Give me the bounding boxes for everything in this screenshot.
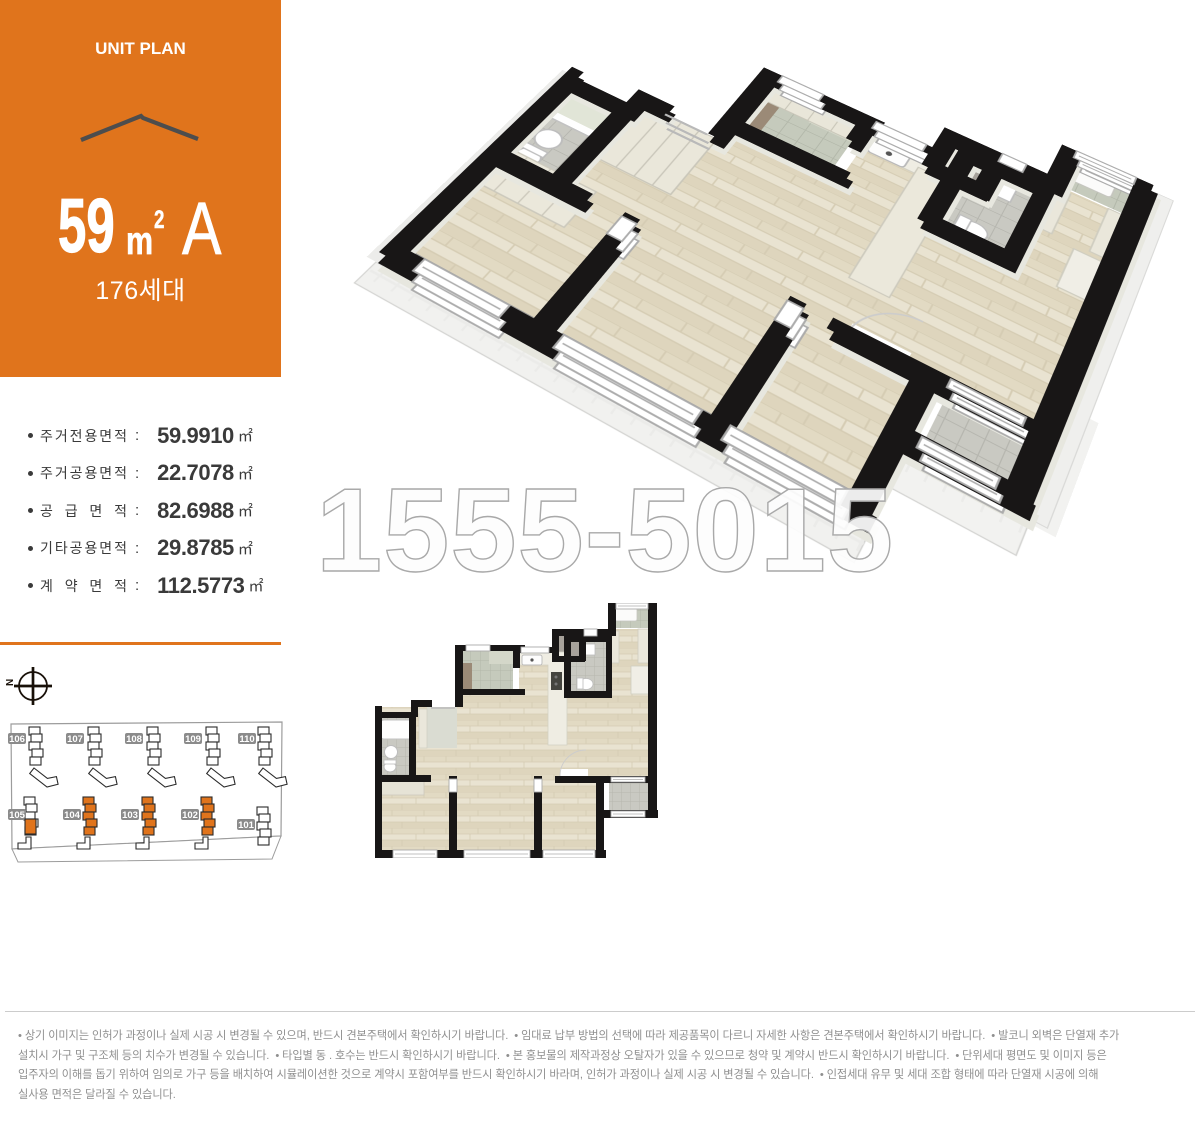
svg-text:103: 103 [122, 810, 138, 821]
svg-text:109: 109 [185, 734, 201, 745]
svg-text:105: 105 [9, 810, 26, 821]
svg-text:106: 106 [9, 734, 25, 745]
svg-text:110: 110 [239, 734, 254, 745]
svg-text:N: N [5, 679, 16, 686]
svg-text:108: 108 [126, 734, 142, 745]
svg-text:107: 107 [67, 734, 83, 745]
svg-text:101: 101 [238, 820, 255, 831]
svg-text:102: 102 [182, 810, 198, 821]
svg-text:104: 104 [64, 810, 81, 821]
